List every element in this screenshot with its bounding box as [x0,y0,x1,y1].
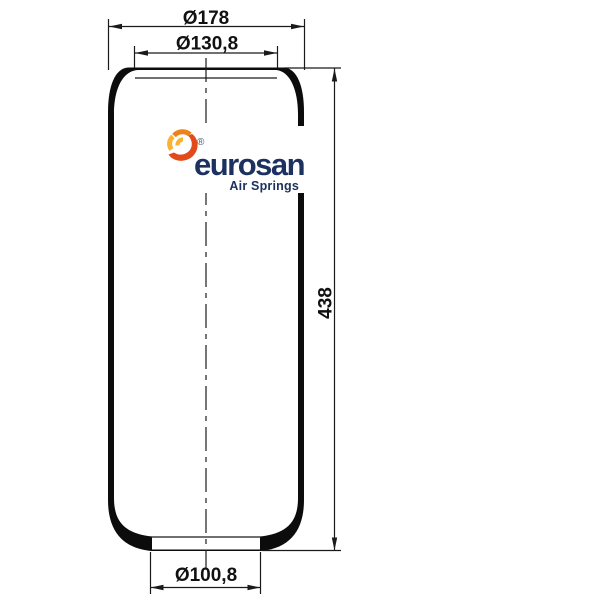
dimension-label-height: 438 [316,287,337,319]
arrowhead-down [332,538,337,551]
brand-tagline: Air Springs [229,179,299,193]
arrowhead-right [248,585,261,590]
brand-logo: ® eurosan Air Springs [169,126,305,193]
technical-drawing-canvas: Ø178 Ø130,8 438 Ø100,8 [0,0,600,600]
dimension-label-top-inner: Ø130,8 [176,34,238,55]
arrowhead-right [291,24,304,29]
arrowhead-up [332,69,337,82]
dimension-label-bottom: Ø100,8 [175,565,237,586]
arrowhead-left [109,24,122,29]
arrowhead-left [151,585,164,590]
air-spring-drawing: Ø178 Ø130,8 438 Ø100,8 [0,0,600,600]
brand-name: eurosan [194,147,305,182]
arrowhead-right [264,50,277,55]
dimension-label-top-outer: Ø178 [183,8,229,29]
arrowhead-left [135,50,148,55]
